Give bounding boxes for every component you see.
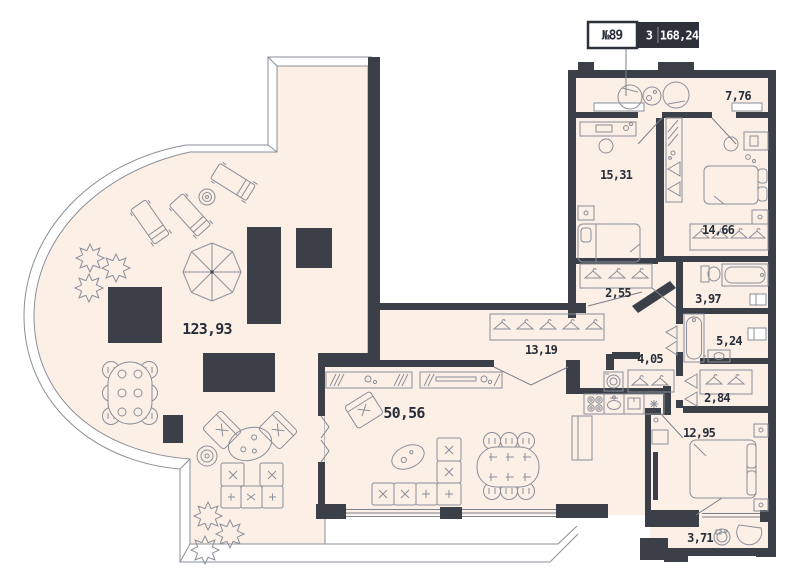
room-label-hallway: 4,05 bbox=[637, 352, 663, 366]
floor-plan: 123,93 50,56 7,76 15,31 14,66 2,55 3,97 … bbox=[0, 0, 800, 588]
rooms-count: 3 bbox=[646, 29, 653, 43]
room-label-wardrobe2: 2,84 bbox=[704, 391, 730, 405]
terrace-floor bbox=[34, 66, 368, 544]
hall-sill bbox=[732, 103, 762, 111]
living-floor bbox=[325, 367, 768, 515]
parasol-icon bbox=[183, 243, 241, 301]
planter bbox=[296, 228, 332, 268]
room-label-wardrobe1: 2,55 bbox=[605, 286, 631, 300]
radiator-icon bbox=[748, 328, 766, 340]
apartment-number: №89 bbox=[602, 29, 623, 44]
room-label-bedroom2: 14,66 bbox=[702, 223, 735, 237]
room-label-bedroom1: 15,31 bbox=[600, 168, 633, 182]
room-label-bedroom3: 12,95 bbox=[683, 426, 716, 440]
floor-plan-canvas: 123,93 50,56 7,76 15,31 14,66 2,55 3,97 … bbox=[0, 0, 800, 588]
radiator-icon bbox=[750, 294, 766, 305]
room-label-bathroom3: 3,71 bbox=[687, 531, 713, 545]
planter bbox=[108, 287, 162, 343]
room-label-terrace: 123,93 bbox=[182, 320, 232, 338]
planter bbox=[247, 227, 281, 324]
room-label-bathroom1: 3,97 bbox=[695, 292, 721, 306]
room-label-corridor: 13,19 bbox=[525, 343, 558, 357]
room-label-entrance-hall: 7,76 bbox=[725, 89, 751, 103]
total-area: 168,24 bbox=[660, 29, 699, 43]
hob-vent-icon bbox=[650, 400, 658, 408]
room-label-living-kitchen: 50,56 bbox=[383, 404, 425, 422]
room-label-bathroom2: 5,24 bbox=[716, 334, 742, 348]
planter bbox=[203, 353, 275, 392]
planter bbox=[163, 415, 183, 443]
